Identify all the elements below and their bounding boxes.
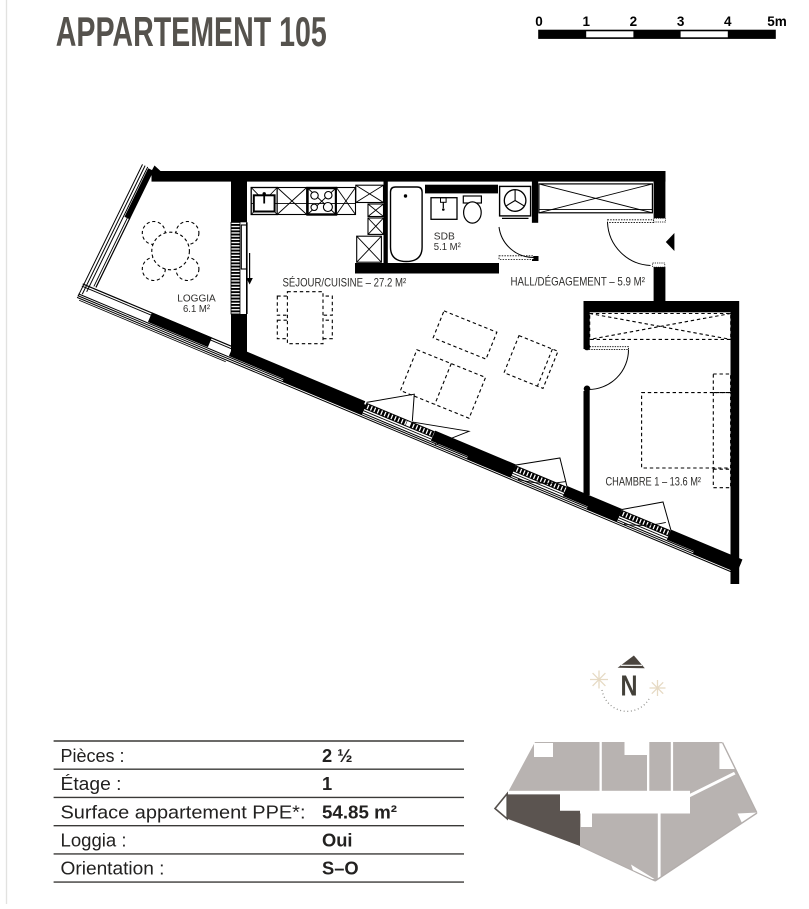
svg-text:0: 0 xyxy=(535,14,543,29)
svg-text:Surface appartement PPE*:: Surface appartement PPE*: xyxy=(61,801,306,822)
svg-text:5.1 M²: 5.1 M² xyxy=(434,242,462,253)
svg-text:N: N xyxy=(621,671,638,703)
svg-text:CHAMBRE 1 – 13.6 M²: CHAMBRE 1 – 13.6 M² xyxy=(606,474,702,488)
svg-text:1: 1 xyxy=(322,773,332,794)
svg-text:SDB: SDB xyxy=(434,231,455,242)
svg-text:Orientation :: Orientation : xyxy=(61,858,165,879)
svg-text:6.1 M²: 6.1 M² xyxy=(183,304,211,315)
svg-text:Oui: Oui xyxy=(322,830,352,851)
svg-text:HALL/DÉGAGEMENT – 5.9 M²: HALL/DÉGAGEMENT – 5.9 M² xyxy=(511,274,646,289)
svg-text:2 ½: 2 ½ xyxy=(322,745,353,766)
svg-text:5m: 5m xyxy=(767,14,787,29)
svg-text:Loggia :: Loggia : xyxy=(61,830,127,851)
svg-text:2: 2 xyxy=(630,14,638,29)
svg-text:S–O: S–O xyxy=(322,858,359,879)
svg-text:LOGGIA: LOGGIA xyxy=(177,293,216,304)
svg-text:1: 1 xyxy=(582,14,590,29)
svg-text:Étage :: Étage : xyxy=(61,773,122,794)
svg-text:SÉJOUR/CUISINE – 27.2 M²: SÉJOUR/CUISINE – 27.2 M² xyxy=(283,274,407,289)
svg-text:Pièces :: Pièces : xyxy=(61,745,125,766)
svg-text:4: 4 xyxy=(724,14,732,29)
svg-text:3: 3 xyxy=(677,14,685,29)
svg-text:54.85 m²: 54.85 m² xyxy=(322,801,397,822)
svg-text:APPARTEMENT 105: APPARTEMENT 105 xyxy=(56,8,327,55)
